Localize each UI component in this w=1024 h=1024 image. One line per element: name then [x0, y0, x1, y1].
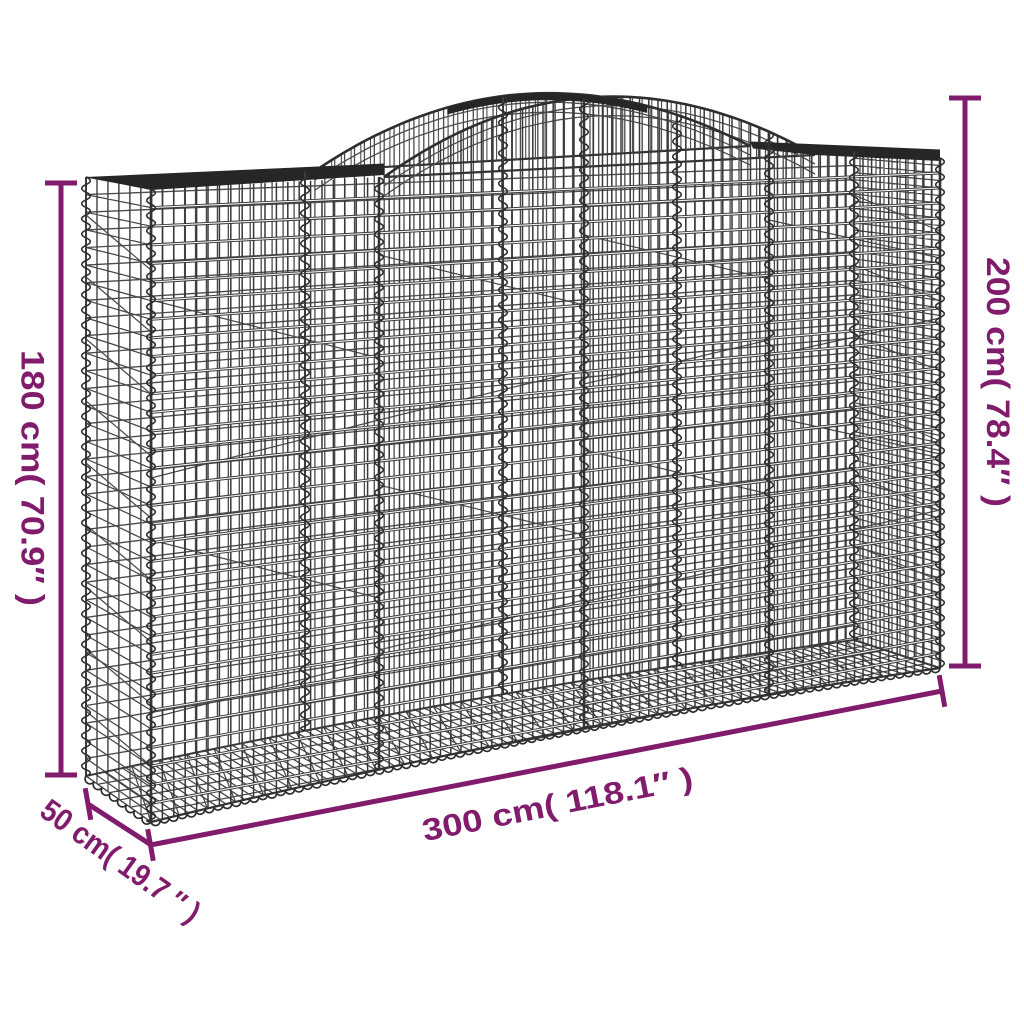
svg-text:200 cm( 78.4″ ): 200 cm( 78.4″ )	[980, 257, 1016, 507]
svg-text:180 cm( 70.9″ ): 180 cm( 70.9″ )	[15, 350, 51, 606]
